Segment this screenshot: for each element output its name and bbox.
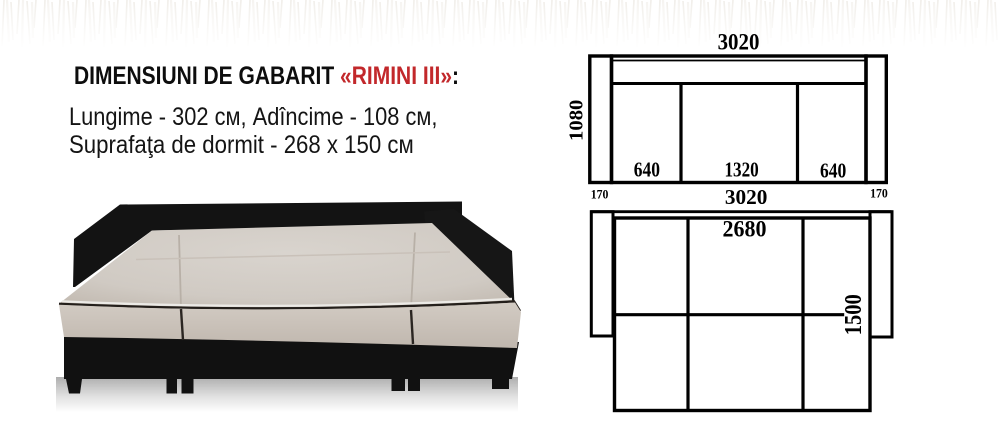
svg-text:2680: 2680 xyxy=(723,217,767,242)
svg-text:640: 640 xyxy=(820,160,846,183)
svg-text:1500: 1500 xyxy=(841,294,867,335)
svg-text:3020: 3020 xyxy=(725,186,768,209)
svg-text:3020: 3020 xyxy=(718,29,760,55)
svg-text:1320: 1320 xyxy=(724,158,758,181)
svg-text:640: 640 xyxy=(634,158,660,181)
svg-text:1080: 1080 xyxy=(565,100,587,141)
svg-text:170: 170 xyxy=(591,187,609,201)
svg-text:170: 170 xyxy=(870,187,888,201)
